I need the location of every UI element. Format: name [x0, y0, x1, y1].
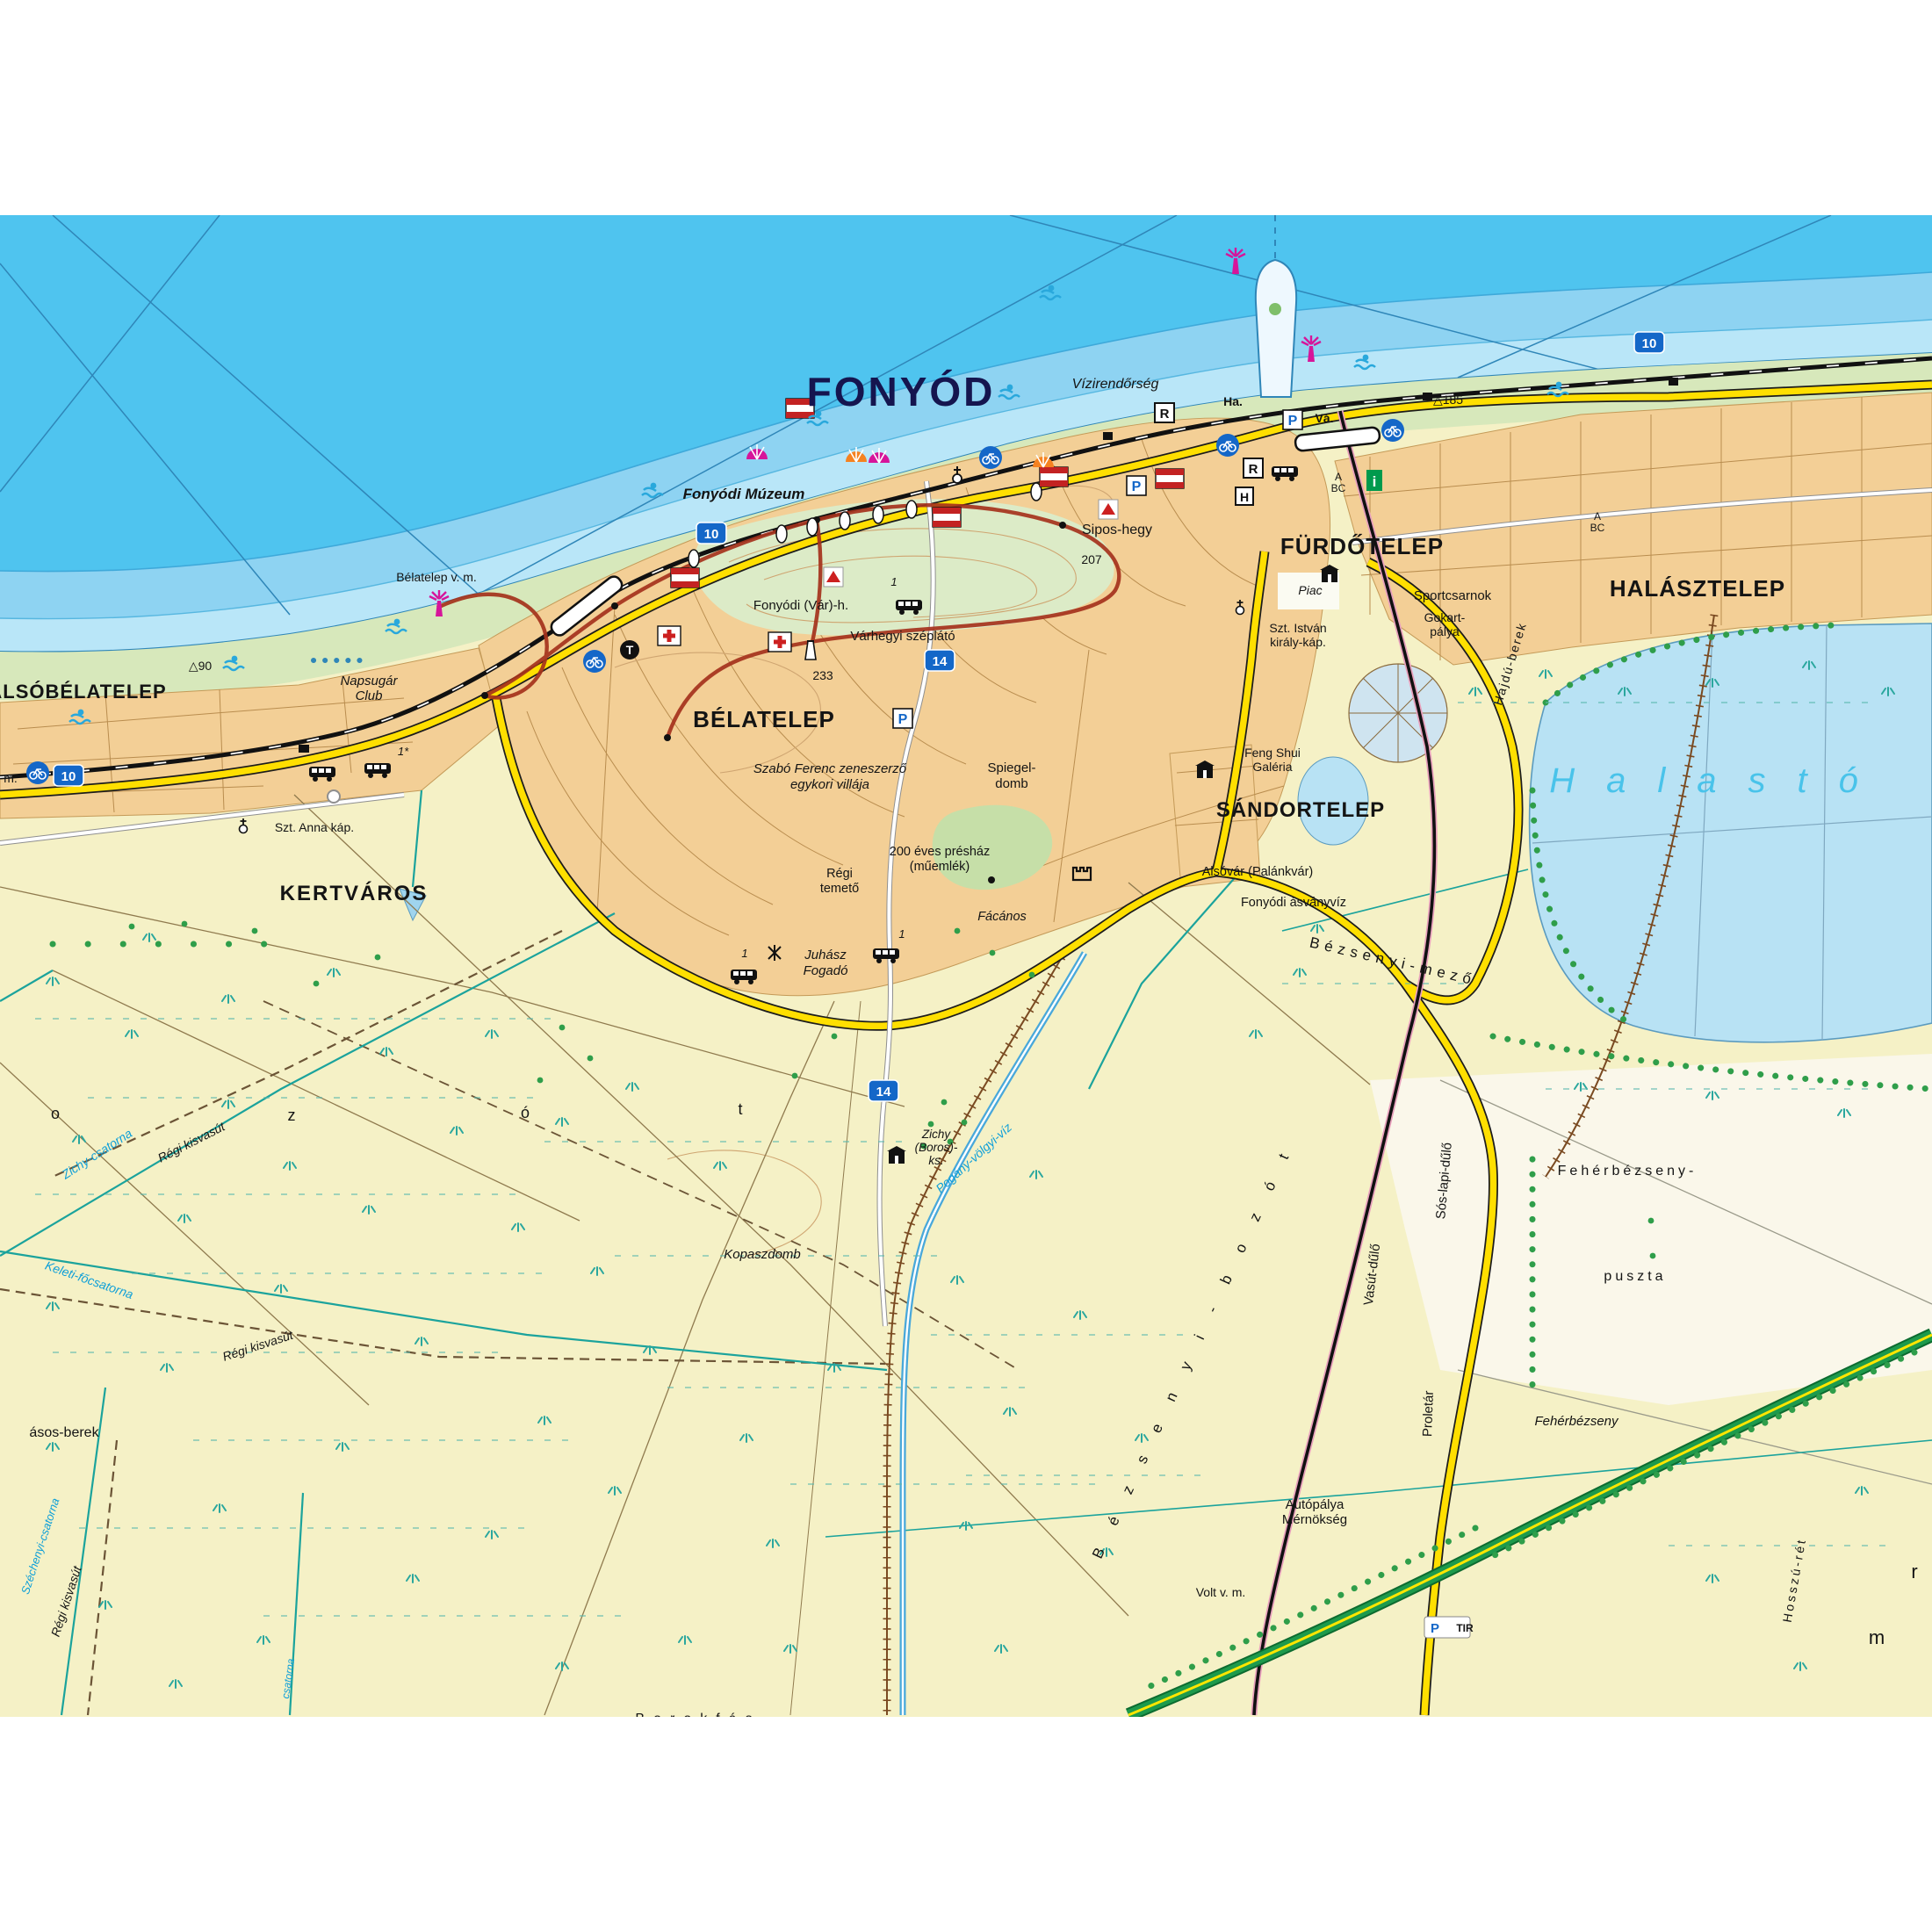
map-label: Fonyódi ásványvíz	[1241, 896, 1346, 910]
puszta-fields	[1370, 1054, 1932, 1405]
chapel-icon	[1236, 600, 1244, 615]
map-label: AutópályaMérnökség	[1282, 1497, 1347, 1527]
map-label: Várhegyi széplátó	[850, 629, 955, 644]
map-label: Sportcsarnok	[1414, 588, 1492, 603]
map-label: Alsóvár (Palánkvár)	[1202, 865, 1314, 879]
svg-text:10: 10	[61, 769, 76, 784]
parking-icon: P	[1127, 476, 1146, 495]
road-shield: 10	[1634, 332, 1664, 353]
map-label: 233	[812, 668, 833, 682]
map-label: Gokart-pálya	[1424, 610, 1466, 638]
map-label: Proletár	[1420, 1390, 1437, 1437]
map-label: 1*	[398, 745, 409, 758]
map-label: Piac	[1298, 583, 1322, 597]
map-label: 207	[1081, 552, 1102, 566]
svg-text:P: P	[898, 712, 908, 727]
map-label: △90	[189, 659, 213, 673]
svg-text:H: H	[1240, 490, 1249, 504]
lodging-icon	[1040, 467, 1068, 487]
map-label: Szt. Istvánkirály-káp.	[1269, 621, 1326, 649]
lodging-icon	[933, 508, 961, 527]
r-box-icon: R	[1244, 458, 1263, 478]
road-shield: 10	[54, 765, 83, 786]
road-shield: 14	[925, 650, 955, 671]
map-label: 1	[890, 575, 897, 588]
bike-icon	[1381, 419, 1404, 442]
map-label: Vízirendőrség	[1072, 377, 1159, 392]
firstaid-icon	[768, 632, 791, 652]
map-label: KERTVÁROS	[280, 881, 429, 905]
bike-icon	[979, 446, 1002, 469]
map-label: Halastó	[1549, 761, 1890, 800]
h-box-icon: H	[1236, 487, 1253, 505]
bike-icon	[1216, 434, 1239, 457]
parking-icon: P	[1283, 410, 1302, 429]
map-label: ó	[521, 1104, 530, 1121]
map-label: r	[1911, 1561, 1917, 1582]
map-label: Fonyódi Múzeum	[683, 486, 805, 502]
map-label: o	[51, 1105, 60, 1122]
svg-text:R: R	[1160, 407, 1170, 422]
map-label: Volt v. m.	[1196, 1585, 1246, 1599]
map-label: Borokfás	[635, 1712, 761, 1727]
svg-text:14: 14	[933, 654, 948, 669]
map-label: FÜRDŐTELEP	[1280, 533, 1444, 559]
lodging-icon	[671, 568, 699, 588]
bike-icon	[26, 761, 49, 784]
map-label: ásos-berek	[29, 1425, 99, 1440]
map-label: Kopaszdomb	[724, 1247, 801, 1262]
map-label: Vá.	[1315, 411, 1333, 425]
map-label: t	[738, 1100, 742, 1118]
svg-text:10: 10	[1642, 336, 1657, 351]
svg-text:P: P	[1431, 1621, 1439, 1636]
road-shield: 14	[869, 1080, 898, 1101]
lodging-icon	[1156, 469, 1184, 488]
map-label: △185	[1433, 393, 1463, 407]
peak-box-icon	[824, 567, 843, 587]
map-label: 1	[898, 927, 905, 941]
map-label: BÉLATELEP	[693, 706, 835, 732]
r-box-icon: R	[1155, 403, 1174, 422]
map-label: Bélatelep v. m.	[396, 570, 477, 584]
parking-icon: P	[893, 709, 912, 728]
map-label: m	[1869, 1626, 1885, 1648]
map-label: Fehérbézseny-	[1558, 1164, 1698, 1179]
fonyod-map: PPPRRHiTP 1010101414 FONYÓDALSÓBÉLATELEP…	[0, 0, 1932, 1932]
map-label: Ha.	[1223, 394, 1243, 408]
map-label: Feng ShuiGaléria	[1244, 746, 1301, 774]
svg-text:14: 14	[876, 1085, 891, 1099]
svg-text:P: P	[1288, 414, 1298, 429]
svg-text:10: 10	[704, 527, 719, 542]
map-label: SÁNDORTELEP	[1216, 797, 1385, 822]
map-label: ALSÓBÉLATELEP	[0, 681, 167, 703]
roundhouse	[1349, 664, 1447, 762]
t-circle-icon: T	[620, 640, 639, 660]
firstaid-icon	[658, 626, 681, 645]
map-label: Fonyódi (Vár)-h.	[753, 598, 848, 613]
map-label: Sipos-hegy	[1082, 523, 1152, 537]
svg-text:T: T	[626, 643, 634, 657]
map-label: Fácános	[977, 910, 1027, 924]
map-label: FONYÓD	[807, 369, 996, 415]
map-label: JuhászFogadó	[804, 948, 848, 978]
map-label: z	[288, 1107, 296, 1124]
map-label: Szt. Anna káp.	[275, 820, 354, 834]
svg-text:P: P	[1132, 479, 1142, 494]
map-screenshot: PPPRRHiTP 1010101414 FONYÓDALSÓBÉLATELEP…	[0, 0, 1932, 1932]
road-shield: 10	[696, 523, 726, 544]
info-icon: i	[1366, 470, 1382, 491]
bike-icon	[583, 650, 606, 673]
harbor	[1256, 260, 1296, 397]
map-label: Fehérbézseny	[1534, 1414, 1619, 1429]
svg-text:R: R	[1249, 462, 1258, 477]
map-label: puszta	[1604, 1269, 1666, 1284]
map-label: HALÁSZTELEP	[1610, 575, 1785, 602]
map-label: TIR	[1456, 1622, 1474, 1634]
map-label: m.	[4, 771, 18, 785]
svg-text:i: i	[1373, 473, 1377, 490]
peak-box-icon	[1099, 500, 1118, 519]
lookout-tower-icon	[805, 641, 816, 660]
chapel-icon	[240, 818, 248, 833]
map-label: 1	[741, 947, 747, 960]
